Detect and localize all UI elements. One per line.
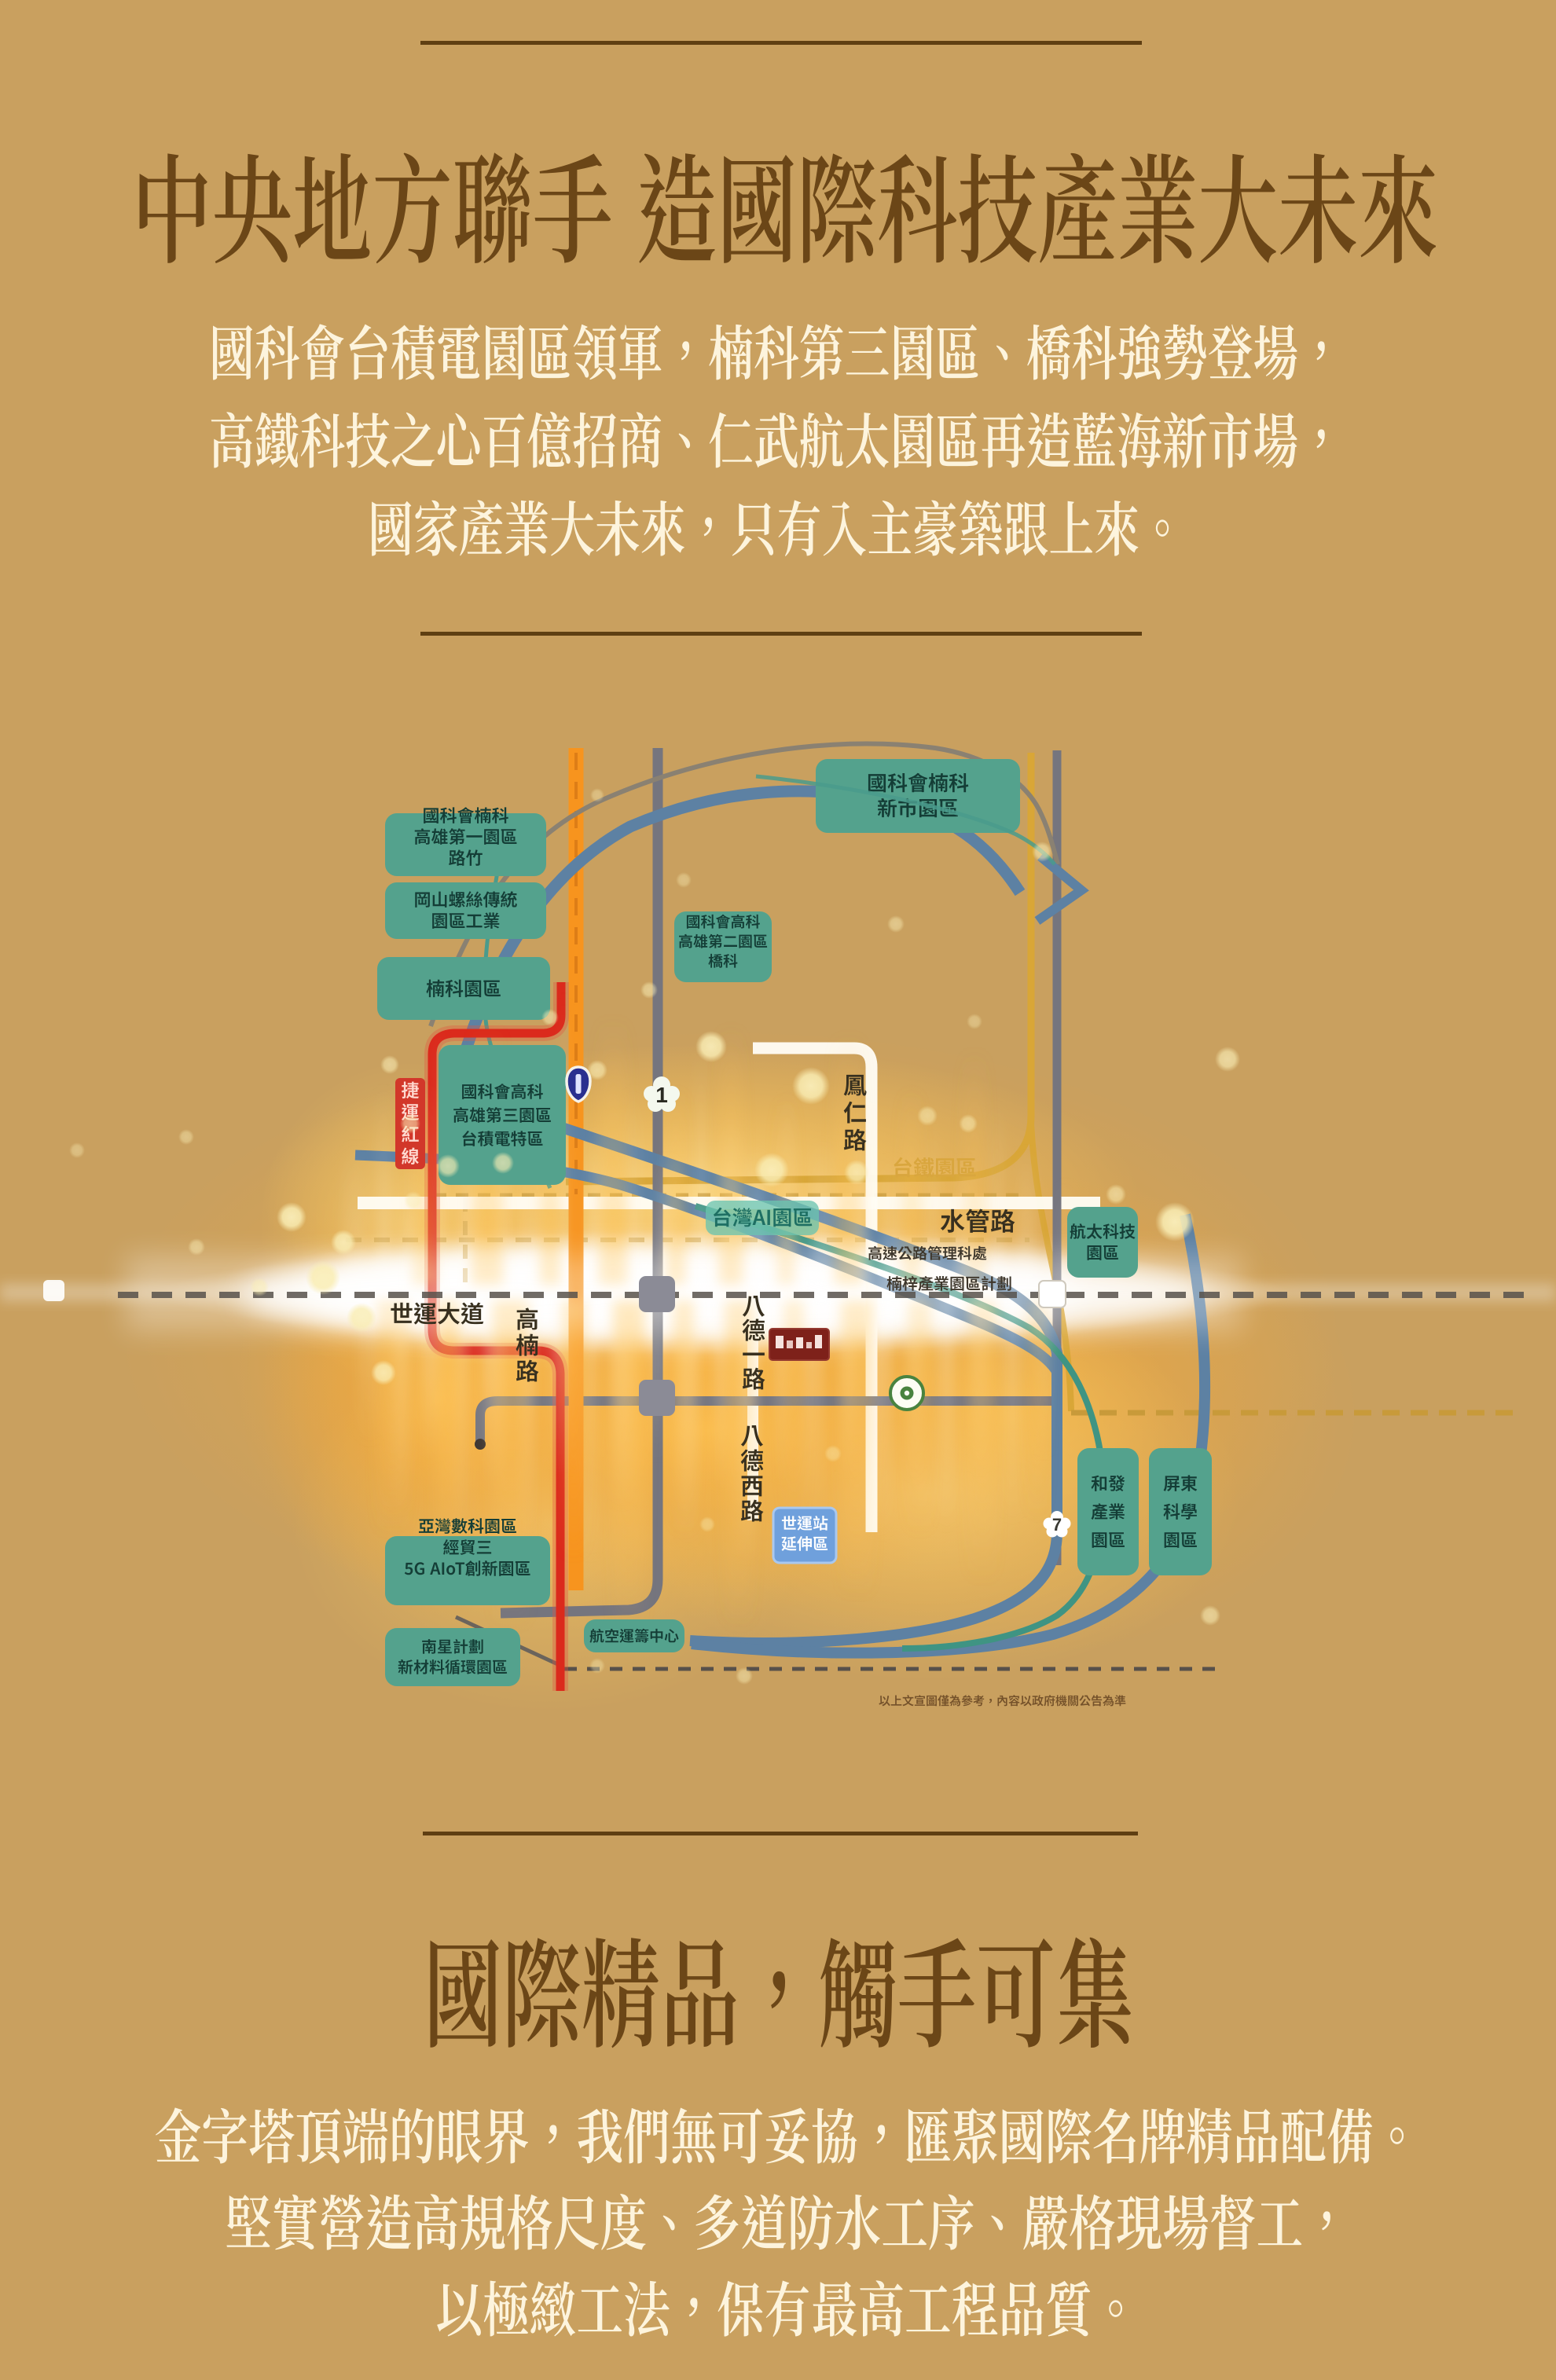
svg-text:世運大道: 世運大道 [390,1295,484,1329]
svg-text:5G AIoT創新園區: 5G AIoT創新園區 [404,1557,530,1580]
svg-text:產業: 產業 [1091,1498,1125,1524]
svg-text:路: 路 [742,1360,765,1395]
svg-text:高雄第二園區: 高雄第二園區 [678,930,768,952]
svg-text:台積電特區: 台積電特區 [461,1127,544,1150]
svg-text:園區: 園區 [1086,1241,1119,1264]
svg-text:和發: 和發 [1091,1470,1125,1495]
svg-text:路竹: 路竹 [448,845,483,870]
svg-text:國科會高科: 國科會高科 [685,911,760,932]
svg-text:路: 路 [740,1492,764,1527]
svg-text:高雄第三園區: 高雄第三園區 [453,1103,552,1127]
svg-text:路: 路 [843,1121,867,1156]
svg-text:科學: 科學 [1163,1498,1198,1524]
svg-text:南星計劃: 南星計劃 [421,1634,484,1657]
svg-text:楠梓產業園區計劃: 楠梓產業園區計劃 [886,1271,1012,1294]
svg-text:園區工業: 園區工業 [431,908,500,933]
svg-text:路: 路 [516,1352,539,1387]
svg-text:新材料循環園區: 新材料循環園區 [398,1655,508,1678]
svg-text:航空運籌中心: 航空運籌中心 [589,1625,679,1646]
svg-text:亞灣數科園區: 亞灣數科園區 [418,1514,517,1538]
svg-text:屏東: 屏東 [1163,1470,1198,1495]
svg-text:延伸區: 延伸區 [781,1531,828,1554]
svg-text:台鐵園區: 台鐵園區 [892,1151,977,1182]
svg-text:航太科技: 航太科技 [1070,1219,1136,1243]
svg-text:台灣AI園區: 台灣AI園區 [712,1202,813,1231]
svg-text:國科會高科: 國科會高科 [461,1080,544,1103]
svg-text:高速公路管理科處: 高速公路管理科處 [868,1242,987,1263]
svg-text:7: 7 [1052,1515,1062,1535]
svg-text:橋科: 橋科 [708,950,738,971]
svg-text:經貿三: 經貿三 [443,1535,493,1559]
svg-text:線: 線 [402,1142,420,1168]
svg-text:水管路: 水管路 [940,1202,1015,1238]
svg-text:1: 1 [655,1083,668,1107]
svg-text:園區: 園區 [1163,1527,1198,1552]
svg-text:世運站: 世運站 [781,1511,828,1534]
svg-text:楠科園區: 楠科園區 [426,974,501,1001]
svg-text:園區: 園區 [1091,1527,1125,1552]
